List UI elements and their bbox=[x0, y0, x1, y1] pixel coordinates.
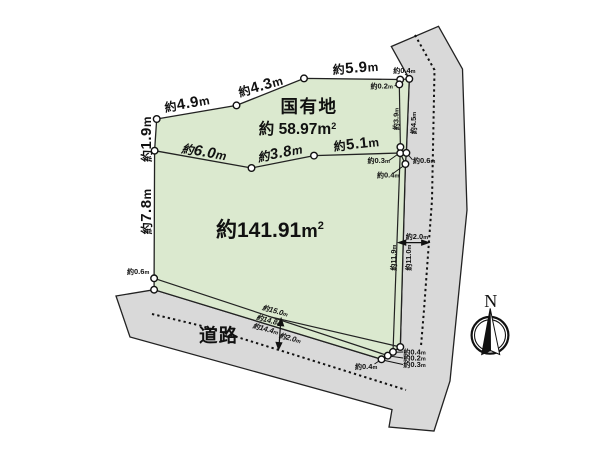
svg-text:約0.6m: 約0.6m bbox=[127, 267, 149, 276]
svg-text:国有地: 国有地 bbox=[281, 97, 338, 117]
svg-text:約141.91m2: 約141.91m2 bbox=[216, 218, 324, 242]
svg-text:約 58.97m2: 約 58.97m2 bbox=[259, 119, 336, 138]
svg-text:約5.9m: 約5.9m bbox=[332, 58, 379, 78]
svg-text:道路: 道路 bbox=[199, 325, 238, 346]
svg-text:N: N bbox=[484, 291, 497, 311]
svg-text:約1.9m: 約1.9m bbox=[138, 116, 155, 162]
svg-text:約7.8m: 約7.8m bbox=[138, 188, 155, 234]
